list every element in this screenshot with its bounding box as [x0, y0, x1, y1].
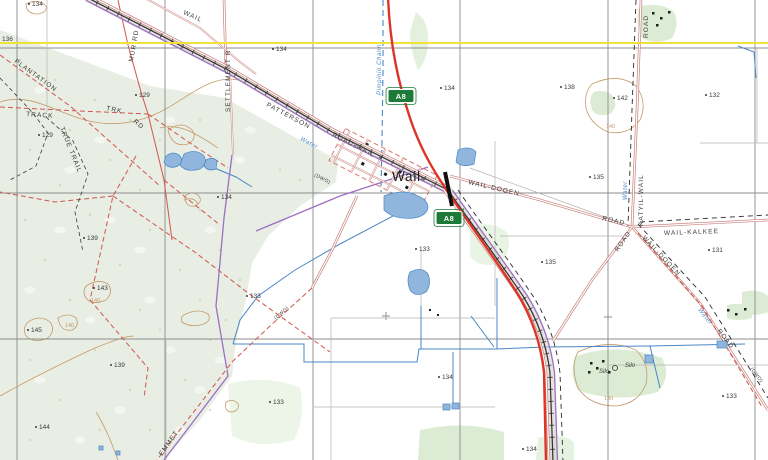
spot-height: 133 [250, 293, 261, 300]
spot-height: 135 [593, 174, 604, 181]
spot-height: 134 [276, 46, 287, 53]
silo-label: Silo [599, 369, 610, 375]
water-label: Pimpinio Chann [377, 44, 383, 95]
road-label: ROAD [643, 15, 650, 38]
spot-height: 139 [114, 362, 125, 369]
road-label: SETTLEMENT R [225, 49, 232, 112]
contour-label: 140 [91, 298, 100, 304]
shield-text: A8 [396, 92, 407, 101]
spot-height: 129 [42, 132, 53, 139]
spot-height: 134 [526, 446, 537, 453]
contour-label: 140 [606, 124, 615, 130]
locality-boundary-dashes [628, 0, 768, 398]
spot-height: 144 [39, 424, 50, 431]
spot-height: 133 [273, 399, 284, 406]
spot-height: 131 [712, 247, 723, 254]
road-label: WAIL [182, 9, 203, 24]
water-label: Water [623, 181, 629, 200]
spot-height: 134 [444, 85, 455, 92]
spot-height: 135 [545, 259, 556, 266]
route-shield-a8: A8 [434, 210, 464, 227]
spot-height: 133 [419, 246, 430, 253]
spot-height: 143 [97, 285, 108, 292]
road-label: MUR RD [128, 29, 141, 62]
spot-height: 129 [139, 92, 150, 99]
road-label: ROAD [602, 215, 626, 227]
shield-text: A8 [444, 214, 455, 223]
silo-label: Silo [625, 363, 636, 369]
road-label: WAIL-DOOEN [641, 235, 682, 278]
road-label: KATYIL-WAIL [638, 174, 645, 226]
spot-height: 139 [87, 235, 98, 242]
spot-height: 134 [442, 374, 453, 381]
highway-a8-line [388, 0, 546, 460]
contour-label: 140 [65, 323, 74, 329]
road-label: WAIL-DOOEN [468, 179, 521, 198]
topo-map-viewport[interactable]: WAIL PATTERSON ROAD WAIL SETTLEMENT R MU… [0, 0, 768, 460]
spot-height: 132 [709, 92, 720, 99]
spot-height: 136 [2, 36, 13, 43]
road-label: WAIL-KALKEE [664, 228, 719, 237]
route-shield-a8: A8 [386, 88, 416, 105]
topo-map-canvas: WAIL PATTERSON ROAD WAIL SETTLEMENT R MU… [0, 0, 768, 460]
contour-label: 140 [604, 396, 613, 402]
spot-height: 138 [564, 84, 575, 91]
forest-area [0, 5, 768, 460]
rural-buildings [429, 11, 747, 374]
spot-height: 134 [32, 1, 43, 8]
road-label: ROAD [614, 230, 633, 253]
pimpinio-channel [381, 0, 383, 192]
spot-height: 145 [31, 327, 42, 334]
spot-height: 134 [221, 194, 232, 201]
town-label: Wail [392, 169, 421, 184]
spot-height: 133 [726, 393, 737, 400]
spot-height: 142 [617, 95, 628, 102]
